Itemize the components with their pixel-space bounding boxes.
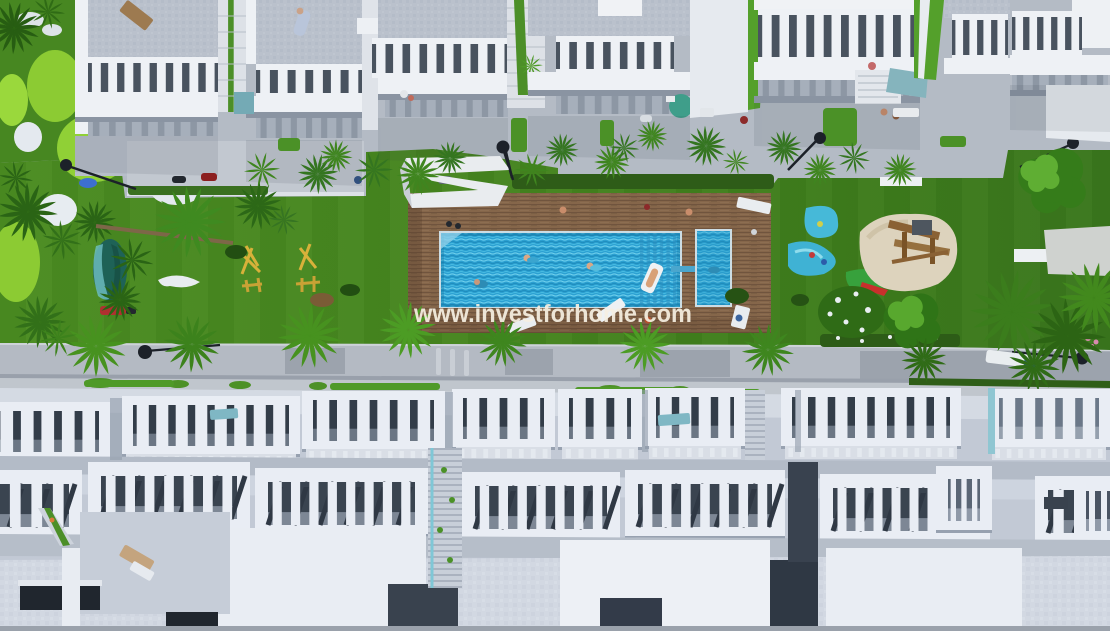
svg-text:www.investforhome.com: www.investforhome.com	[413, 300, 692, 328]
